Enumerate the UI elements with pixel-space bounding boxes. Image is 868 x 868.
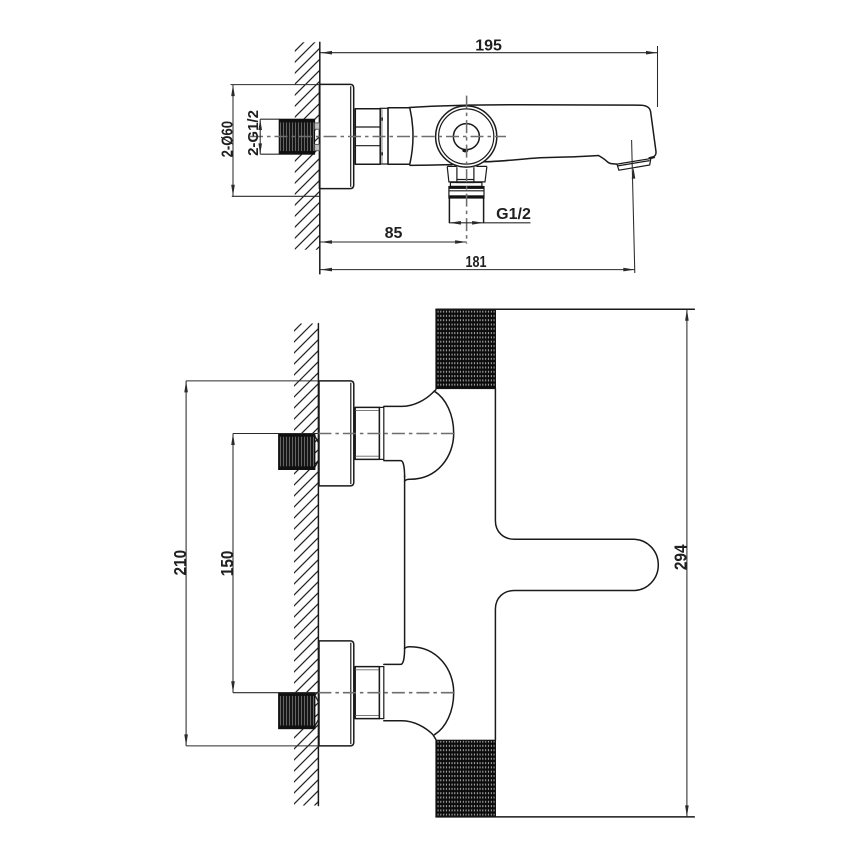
svg-text:294: 294 [672, 544, 691, 570]
svg-text:2-Ø60: 2-Ø60 [219, 121, 236, 157]
svg-text:210: 210 [171, 550, 190, 576]
svg-text:150: 150 [218, 551, 237, 577]
svg-text:2-G1/2: 2-G1/2 [245, 110, 262, 156]
svg-text:181: 181 [466, 254, 487, 271]
svg-text:85: 85 [385, 225, 403, 242]
svg-text:195: 195 [475, 38, 502, 55]
svg-text:G1/2: G1/2 [496, 206, 531, 223]
